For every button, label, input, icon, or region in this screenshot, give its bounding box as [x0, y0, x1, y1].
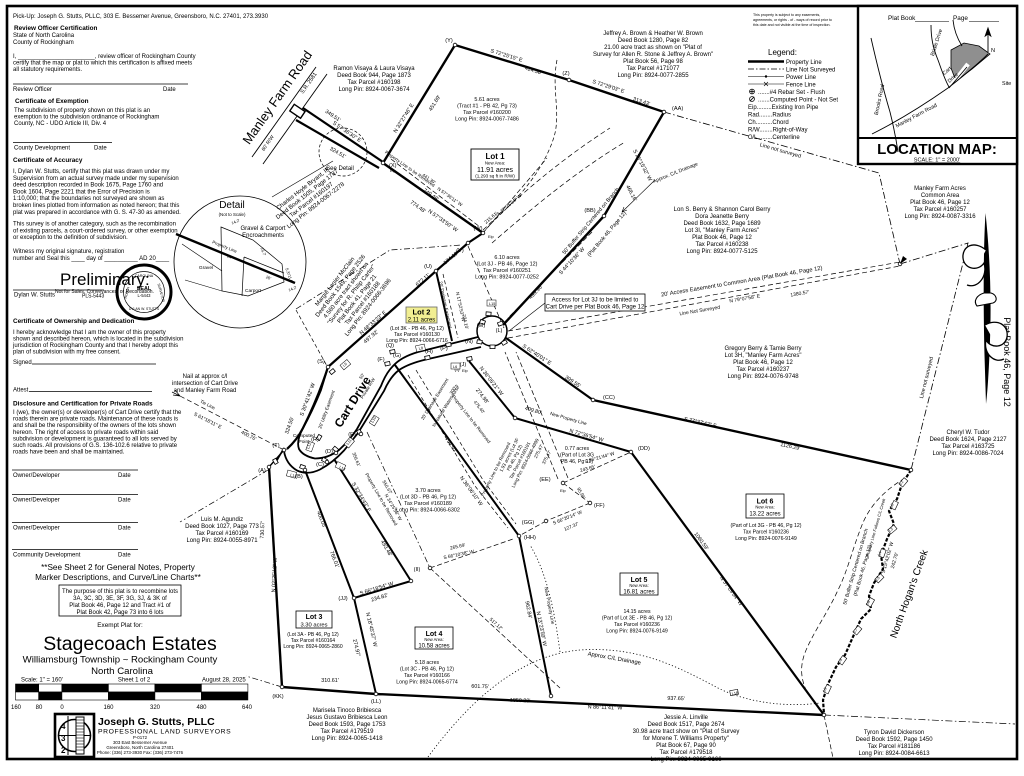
- svg-text:New Area:: New Area:: [485, 161, 505, 166]
- svg-text:Access for Lot 3J to be limite: Access for Lot 3J to be limited to: [552, 298, 639, 304]
- svg-text:(R): (R): [311, 437, 319, 443]
- svg-text:Eip: Eip: [390, 168, 397, 173]
- svg-text:Witness my original signature,: Witness my original signature, registrat…: [13, 249, 124, 255]
- svg-text:(A): (A): [258, 468, 266, 474]
- svg-text:PROFESSIONAL LAND SURVEYORS: PROFESSIONAL LAND SURVEYORS: [98, 729, 231, 736]
- svg-text:.......#4 Rebar Set - Flush: .......#4 Rebar Set - Flush: [758, 90, 825, 96]
- svg-text:Deed Book 944, Page 1873: Deed Book 944, Page 1873: [337, 73, 411, 79]
- svg-text:Dylan W. Stutts: Dylan W. Stutts: [14, 293, 55, 299]
- svg-text:Lot 2: Lot 2: [413, 308, 431, 317]
- svg-text:(P): (P): [440, 346, 448, 352]
- svg-text:(U): (U): [424, 264, 432, 270]
- svg-text:DYLAN W. STUTTS: DYLAN W. STUTTS: [129, 307, 160, 311]
- svg-text:.......Computed Point - Not Se: .......Computed Point - Not Set: [758, 98, 838, 104]
- svg-text:L15: L15: [489, 302, 495, 306]
- svg-text:all statutory requirements.: all statutory requirements.: [13, 67, 82, 73]
- svg-text:This survey is of another cate: This survey is of another category, such…: [13, 222, 176, 228]
- svg-text:SEAL: SEAL: [137, 286, 152, 292]
- svg-text:Deed Book 1517, Page 2674: Deed Book 1517, Page 2674: [647, 722, 725, 728]
- svg-text:Encroachments: Encroachments: [242, 233, 284, 239]
- svg-text:Line Not Surveyed: Line Not Surveyed: [786, 68, 835, 74]
- svg-text:2: 2: [61, 746, 66, 755]
- svg-text:Joseph G. Stutts, PLLC: Joseph G. Stutts, PLLC: [98, 716, 215, 728]
- svg-text:3A, 3C, 3D, 3E, 3F, 3G, 3J, &: 3A, 3C, 3D, 3E, 3F, 3G, 3J, & 3K of: [73, 596, 167, 602]
- svg-text:R/W........Right-of-Way: R/W........Right-of-Way: [748, 128, 807, 134]
- svg-text:(S): (S): [317, 359, 325, 365]
- svg-text:Detail: Detail: [219, 200, 245, 211]
- svg-text:Long Pin: 8924-0076-9149: Long Pin: 8924-0076-9149: [735, 536, 797, 542]
- svg-text:(W): (W): [473, 226, 482, 232]
- svg-text:I, Dylan W. Stutts, certify th: I, Dylan W. Stutts, certify that this pl…: [13, 169, 169, 175]
- svg-text:Owner/Developer: Owner/Developer: [13, 526, 60, 532]
- svg-text:Tax Parcel #160237: Tax Parcel #160237: [736, 367, 790, 373]
- svg-text:Jessie A. Linville: Jessie A. Linville: [664, 715, 709, 721]
- svg-text:Long Pin: 8924-0076-9748: Long Pin: 8924-0076-9748: [727, 374, 799, 380]
- svg-text:I hereby acknowledge that I am: I hereby acknowledge that I am the owner…: [13, 330, 166, 336]
- svg-text:broken lines plotted from info: broken lines plotted from information as…: [13, 203, 179, 209]
- svg-text:21.00 acre tract as shown on ": 21.00 acre tract as shown on "Plat of: [604, 45, 702, 51]
- svg-text:Review Officer: Review Officer: [13, 87, 52, 93]
- svg-text:(H): (H): [425, 349, 433, 355]
- svg-text:I, _______________________, re: I, _______________________, review offic…: [13, 54, 196, 60]
- svg-text:SCALE: 1" = 2000': SCALE: 1" = 2000': [914, 158, 960, 164]
- svg-text:Long Pin: 8924-0067-7486: Long Pin: 8924-0067-7486: [455, 117, 519, 123]
- svg-text:5.18 acres: 5.18 acres: [415, 660, 440, 666]
- svg-text:C/L.........Centerline: C/L.........Centerline: [748, 135, 800, 141]
- svg-text:Plat Book 67, Page 90: Plat Book 67, Page 90: [656, 743, 716, 749]
- svg-text:Plat Book 46, Page 12 and Trac: Plat Book 46, Page 12 and Tract #1 of: [69, 603, 171, 609]
- svg-text:Legend:: Legend:: [768, 48, 797, 57]
- svg-text:Luis M. Agundiz: Luis M. Agundiz: [201, 517, 243, 523]
- svg-text:Jesus Gustavo Bribiesca Leon: Jesus Gustavo Bribiesca Leon: [306, 715, 387, 721]
- svg-text:10.58 acres: 10.58 acres: [418, 644, 449, 650]
- svg-text:Gravel: Gravel: [199, 265, 213, 271]
- svg-text:number and Seal this ____ day: number and Seal this ____ day of _______…: [13, 256, 170, 262]
- svg-text:Tax Parcel #181186: Tax Parcel #181186: [868, 744, 921, 750]
- svg-text:Long Pin: 8924-0065-1418: Long Pin: 8924-0065-1418: [311, 736, 383, 742]
- svg-text:Long Pin: 8924-0076-9149: Long Pin: 8924-0076-9149: [606, 629, 668, 635]
- svg-text:Long Pin: 8924-0087-3316: Long Pin: 8924-0087-3316: [904, 214, 976, 220]
- svg-text:Plat Book 46, Page 12: Plat Book 46, Page 12: [692, 235, 752, 241]
- svg-text:Long Pin: 8924-0065-9166: Long Pin: 8924-0065-9166: [650, 757, 722, 763]
- svg-text:Tax Parcel #171077: Tax Parcel #171077: [626, 66, 680, 72]
- svg-text:New Area:: New Area:: [424, 637, 443, 642]
- svg-text:640: 640: [242, 705, 253, 711]
- svg-text:N: N: [991, 48, 995, 54]
- svg-text:of existing parcels, a court-o: of existing parcels, a court-ordered sur…: [13, 228, 178, 234]
- svg-text:Plat Book 42, Page 73 into 6 l: Plat Book 42, Page 73 into 6 lots: [76, 610, 163, 616]
- svg-text:August 28, 2025: August 28, 2025: [202, 678, 246, 684]
- svg-text:30.98 acre tract show on "Plat: 30.98 acre tract show on "Plat of Survey: [633, 729, 740, 735]
- svg-text:jurisdiction of Rockingham Cou: jurisdiction of Rockingham County and th…: [12, 343, 178, 349]
- svg-text:Nail at approx c/l: Nail at approx c/l: [183, 374, 228, 380]
- svg-text:2.11 acres: 2.11 acres: [408, 318, 436, 324]
- svg-text:Deed Book 1592, Page 1450: Deed Book 1592, Page 1450: [855, 737, 933, 743]
- svg-text:New Area:: New Area:: [629, 583, 648, 588]
- svg-text:Sheet 1 of 2: Sheet 1 of 2: [118, 678, 151, 684]
- svg-text:Tax Parcel #160238: Tax Parcel #160238: [695, 242, 749, 248]
- svg-text:subdivision or development is: subdivision or development is guaranteed…: [13, 436, 177, 442]
- svg-text:Owner/Developer: Owner/Developer: [13, 473, 60, 479]
- svg-text:Plat Book 46, Page 12: Plat Book 46, Page 12: [733, 360, 793, 366]
- svg-text:(1,293 sq ft in R/W): (1,293 sq ft in R/W): [475, 174, 515, 179]
- svg-text:(KK): (KK): [272, 694, 283, 700]
- svg-text:for Morene T. Williams Propert: for Morene T. Williams Property": [643, 736, 729, 742]
- svg-text:and shall be the responsibilit: and shall be the responsibility of the o…: [13, 423, 176, 429]
- svg-text:Certificate of Ownership and D: Certificate of Ownership and Dedication: [13, 318, 135, 325]
- svg-text:Deed Book 1027, Page 773: Deed Book 1027, Page 773: [185, 524, 259, 530]
- svg-text:Deed Book 1280, Page 82: Deed Book 1280, Page 82: [618, 38, 689, 44]
- svg-text:certify that the map or plat t: certify that the map or plat to which th…: [13, 61, 192, 67]
- svg-text:LOCATION MAP:: LOCATION MAP:: [877, 141, 997, 158]
- svg-text:Carport: Carport: [245, 288, 262, 294]
- svg-text:Attest: Attest: [13, 388, 29, 394]
- svg-text:Signed: Signed: [13, 360, 32, 366]
- svg-text:Lot 3: Lot 3: [306, 614, 323, 621]
- svg-text:Stagecoach Estates: Stagecoach Estates: [43, 633, 217, 655]
- svg-text:Supervision from an actual sur: Supervision from an actual survey made u…: [13, 176, 179, 182]
- svg-text:hereon. The right of access to: hereon. The right of access to private r…: [13, 430, 158, 436]
- svg-text:(Part of Lot 3G - PB 46, Pg 12: (Part of Lot 3G - PB 46, Pg 12): [731, 523, 802, 529]
- svg-text:(L): (L): [496, 328, 503, 334]
- svg-text:or exception to the definition: or exception to the definition of subdiv…: [13, 235, 128, 241]
- svg-text:Owner/Developer: Owner/Developer: [13, 498, 60, 504]
- svg-text:(GG): (GG): [522, 520, 535, 526]
- svg-text:PLS-5443: PLS-5443: [82, 294, 104, 300]
- svg-text:13.22 acres: 13.22 acres: [749, 512, 780, 518]
- svg-text:CAROLINA: CAROLINA: [135, 274, 154, 278]
- svg-text:Date: Date: [118, 473, 131, 479]
- svg-text:3.70 acres: 3.70 acres: [415, 488, 440, 494]
- svg-text:and Manley Farm Road: and Manley Farm Road: [174, 388, 237, 394]
- svg-text:Certificate of Exemption: Certificate of Exemption: [15, 98, 89, 105]
- svg-text:intersection of Cart Drive: intersection of Cart Drive: [172, 381, 239, 387]
- svg-text:Eip: Eip: [462, 368, 469, 373]
- svg-text:Long Pin: 8924-0065-2860: Long Pin: 8924-0065-2860: [283, 644, 342, 650]
- svg-text:Lot 3H, "Manley Farm Acres": Lot 3H, "Manley Farm Acres": [725, 353, 802, 359]
- svg-text:Eip.........Existing Iron Pipe: Eip.........Existing Iron Pipe: [748, 105, 819, 111]
- svg-text:Scale: 1" = 160': Scale: 1" = 160': [21, 678, 63, 684]
- svg-text:1850.20': 1850.20': [510, 698, 531, 705]
- svg-text:Exempt Plat for:: Exempt Plat for:: [97, 622, 143, 629]
- svg-text:Tax Parcel #160236: Tax Parcel #160236: [743, 530, 789, 536]
- svg-text:Date: Date: [118, 553, 131, 559]
- svg-text:I (we), the owner(s) or develo: I (we), the owner(s) or developer(s) of …: [13, 410, 182, 416]
- svg-text:roads have been and shall be m: roads have been and shall be maintained.: [13, 450, 125, 456]
- svg-text:Long Pin: 8924-0067-3674: Long Pin: 8924-0067-3674: [338, 87, 410, 93]
- svg-text:Rad........Radius: Rad........Radius: [748, 113, 791, 119]
- svg-text:Tax Parcel #179519: Tax Parcel #179519: [320, 729, 374, 735]
- svg-text:4: 4: [61, 722, 66, 731]
- svg-text:exemption to the subdivision o: exemption to the subdivision ordinance o…: [14, 115, 159, 121]
- svg-text:3.30 acres: 3.30 acres: [300, 623, 327, 629]
- svg-text:(Part of Lot 3E - PB 46, Pg 12: (Part of Lot 3E - PB 46, Pg 12): [602, 616, 673, 622]
- svg-text:(D): (D): [325, 449, 333, 455]
- svg-text:Pick-Up: Joseph G. Stutts, PLL: Pick-Up: Joseph G. Stutts, PLLC, 303 E. …: [13, 14, 269, 20]
- svg-text:(BB): (BB): [584, 208, 595, 214]
- svg-text:Tyron David Dickerson: Tyron David Dickerson: [864, 730, 924, 736]
- svg-text:Power Line: Power Line: [786, 75, 817, 81]
- svg-text:Gregory Berry & Tamie Berry: Gregory Berry & Tamie Berry: [725, 346, 802, 352]
- svg-text:Tax Parcel #160189: Tax Parcel #160189: [404, 501, 452, 507]
- svg-text:The purpose of this plat is to: The purpose of this plat is to recombine…: [62, 589, 178, 595]
- svg-text:agreements, or rights - of - w: agreements, or rights - of - ways of rec…: [753, 18, 832, 22]
- svg-text:Long Pin: 8924-0066-6302: Long Pin: 8924-0066-6302: [396, 508, 460, 514]
- svg-text:Page: Page: [953, 15, 968, 22]
- svg-text:14.15 acres: 14.15 acres: [623, 609, 651, 615]
- svg-text:roads therein are private road: roads therein are private roads. Mainten…: [13, 417, 178, 423]
- svg-text:State of North Carolina: State of North Carolina: [13, 33, 75, 39]
- svg-text:(AA): (AA): [672, 106, 683, 112]
- svg-text:(CC): (CC): [603, 395, 615, 401]
- svg-text:(EE): (EE): [539, 477, 550, 483]
- svg-text:Property Line: Property Line: [786, 60, 822, 66]
- svg-text:(Lot 3D - PB 46, Pg 12): (Lot 3D - PB 46, Pg 12): [400, 495, 456, 501]
- svg-text:deed description recorded in B: deed description recorded in Book 1675, …: [13, 183, 163, 189]
- svg-text:(Lot 3J - PB 46, Page 12): (Lot 3J - PB 46, Page 12): [477, 262, 538, 268]
- svg-text:Deed Book 1632, Page 1689: Deed Book 1632, Page 1689: [683, 221, 761, 227]
- svg-text:Tax Parcel #179518: Tax Parcel #179518: [659, 750, 713, 756]
- svg-text:Date: Date: [118, 526, 131, 532]
- svg-text:Dora Jeanette Berry: Dora Jeanette Berry: [695, 214, 749, 220]
- svg-text:Tax Parcel #160169: Tax Parcel #160169: [195, 531, 249, 537]
- svg-text:(E): (E): [348, 432, 356, 438]
- svg-text:(LL): (LL): [371, 699, 381, 705]
- svg-text:(II): (II): [414, 567, 421, 573]
- svg-text:Plat Book 46, Page 12: Plat Book 46, Page 12: [910, 200, 970, 206]
- svg-text:Marker Descriptions, and Curve: Marker Descriptions, and Curve/Line Char…: [35, 573, 201, 582]
- svg-text:1:10,000; that the boundaries: 1:10,000; that the boundaries not survey…: [13, 196, 164, 202]
- svg-text:Survey for Allen R. Stone & Je: Survey for Allen R. Stone & Jeffrey A. B…: [593, 52, 713, 58]
- svg-text:Lon S. Berry & Shannon Carol B: Lon S. Berry & Shannon Carol Berry: [674, 207, 771, 213]
- svg-text:(Y): (Y): [445, 38, 453, 44]
- svg-text:Cheryl W. Tudor: Cheryl W. Tudor: [946, 430, 989, 436]
- svg-text:Tax Parcel #160257: Tax Parcel #160257: [913, 207, 967, 213]
- svg-text:Tax Parcel #160236: Tax Parcel #160236: [614, 622, 660, 628]
- svg-text:(V): (V): [456, 248, 464, 254]
- svg-text:Ramon Visaya & Laura Visaya: Ramon Visaya & Laura Visaya: [333, 66, 415, 72]
- svg-text:L-5443: L-5443: [137, 293, 151, 298]
- svg-text:Eip: Eip: [488, 234, 495, 239]
- svg-text:Review Officer Certification: Review Officer Certification: [14, 25, 98, 32]
- svg-text:(Q): (Q): [386, 343, 394, 349]
- svg-text:The subdivision of property sh: The subdivision of property shown on thi…: [14, 108, 150, 114]
- svg-text:Fence Line: Fence Line: [786, 83, 816, 89]
- svg-text:160: 160: [11, 705, 22, 711]
- svg-text:80: 80: [36, 705, 43, 711]
- svg-text:Plat Book: Plat Book: [888, 15, 916, 22]
- svg-text:160: 160: [103, 705, 114, 711]
- svg-text:(F): (F): [377, 357, 384, 363]
- svg-text:Date: Date: [118, 498, 131, 504]
- svg-text:(N): (N): [465, 339, 473, 345]
- svg-text:Long Pin: 8924-0077-5125: Long Pin: 8924-0077-5125: [686, 249, 758, 255]
- svg-text:16.81 acres: 16.81 acres: [623, 590, 654, 596]
- svg-text:(Lot 3C - PB 46, Pg 12): (Lot 3C - PB 46, Pg 12): [400, 667, 454, 673]
- svg-text:Deed Book 1624, Page 2127: Deed Book 1624, Page 2127: [929, 437, 1007, 443]
- svg-text:New Area:: New Area:: [755, 505, 774, 510]
- svg-text:480: 480: [196, 705, 207, 711]
- svg-text:Common Area: Common Area: [921, 193, 960, 199]
- svg-text:3: 3: [61, 734, 66, 743]
- svg-text:(C): (C): [316, 462, 324, 468]
- svg-text:937.65': 937.65': [667, 696, 685, 703]
- svg-text:(HH): (HH): [524, 535, 536, 541]
- svg-text:320: 320: [150, 705, 161, 711]
- svg-text:this date and not visible at t: this date and not visible at the time of…: [753, 23, 831, 27]
- svg-text:Williamsburg Township ~ Rockin: Williamsburg Township ~ Rockingham Count…: [23, 655, 218, 666]
- svg-text:(T): (T): [272, 443, 279, 449]
- svg-text:Deed Book 1593, Page 1753: Deed Book 1593, Page 1753: [308, 722, 386, 728]
- svg-text:(G): (G): [393, 353, 401, 359]
- svg-text:Ch..........Chord: Ch..........Chord: [748, 120, 789, 126]
- svg-text:0.77 acres: 0.77 acres: [565, 446, 590, 452]
- svg-text:Tax Parcel #160251: Tax Parcel #160251: [483, 268, 531, 274]
- svg-text:(Part of Lot 3G: (Part of Lot 3G: [560, 453, 594, 459]
- svg-text:Plat Book 56, Page 98: Plat Book 56, Page 98: [623, 59, 683, 65]
- svg-text:Long Pin: 8924-0065-6774: Long Pin: 8924-0065-6774: [396, 680, 458, 686]
- svg-text:Long Pin: 8924-0055-8971: Long Pin: 8924-0055-8971: [186, 538, 258, 544]
- svg-text:Jeffrey A. Brown & Heather W.: Jeffrey A. Brown & Heather W. Brown: [603, 31, 703, 37]
- svg-text:(FF): (FF): [594, 503, 605, 509]
- svg-text:Cart Drive per Plat Book 46, P: Cart Drive per Plat Book 46, Page 12: [546, 305, 645, 311]
- svg-text:Book 1604, Page 2221 that the: Book 1604, Page 2221 that the Error of P…: [13, 189, 150, 195]
- svg-text:County Development: County Development: [14, 146, 70, 152]
- svg-text:730.57': 730.57': [260, 521, 267, 539]
- svg-text:North Carolina: North Carolina: [91, 666, 154, 677]
- svg-text:Long Pin: 8924-0084-6613: Long Pin: 8924-0084-6613: [858, 751, 930, 757]
- svg-text:Date: Date: [94, 146, 107, 152]
- svg-text:Eip: Eip: [560, 488, 567, 493]
- svg-text:Phone: (336) 273-3930 Fax: (3: Phone: (336) 273-3930 Fax: (336) 273-747…: [97, 750, 184, 755]
- svg-text:Long Pin: 8924-0086-7024: Long Pin: 8924-0086-7024: [932, 451, 1004, 457]
- svg-text:6.10 acres: 6.10 acres: [494, 255, 519, 261]
- svg-text:(Tract #1 - PB 42, Pg 73): (Tract #1 - PB 42, Pg 73): [457, 104, 517, 110]
- svg-text:shown and described hereon, wh: shown and described hereon, which is loc…: [13, 337, 183, 343]
- svg-text:Site: Site: [1002, 81, 1011, 87]
- svg-text:Tax Parcel #160166: Tax Parcel #160166: [404, 673, 450, 679]
- svg-text:(M): (M): [477, 323, 486, 329]
- svg-text:Tax Parcel #160200: Tax Parcel #160200: [463, 110, 511, 116]
- svg-text:such roads. All provisions of: such roads. All provisions of G.S. 136-1…: [13, 443, 178, 449]
- svg-text:310.61': 310.61': [321, 678, 339, 684]
- svg-text:(DD): (DD): [638, 446, 650, 452]
- svg-text:County of Rockingham: County of Rockingham: [13, 40, 74, 46]
- svg-text:Disclosure and Certification f: Disclosure and Certification for Private…: [13, 401, 153, 408]
- svg-text:Tax Parcel #163725: Tax Parcel #163725: [941, 444, 995, 450]
- svg-text:L6: L6: [453, 365, 457, 369]
- svg-text:Manley Farm Acres: Manley Farm Acres: [914, 186, 966, 192]
- svg-text:Community Development: Community Development: [13, 553, 81, 559]
- svg-text:**See Sheet 2 for General Note: **See Sheet 2 for General Notes, Propert…: [41, 563, 196, 572]
- svg-text:Long Pin: 8924-0077-2855: Long Pin: 8924-0077-2855: [617, 73, 689, 79]
- svg-text:County, NC - UDO Article III,: County, NC - UDO Article III, Div. 4: [14, 121, 107, 127]
- svg-text:Long Pin: 8924-0077-0252: Long Pin: 8924-0077-0252: [475, 275, 539, 281]
- svg-text:(JJ): (JJ): [338, 596, 347, 602]
- svg-text:This property is subject to an: This property is subject to any easement…: [753, 13, 820, 17]
- svg-text:601.75': 601.75': [471, 684, 489, 691]
- svg-text:N 86°11'41" W: N 86°11'41" W: [588, 704, 624, 711]
- svg-text:Gravel & Carport: Gravel & Carport: [240, 226, 285, 232]
- svg-text:Marisela Tinoco Bribiesca: Marisela Tinoco Bribiesca: [313, 708, 382, 714]
- svg-text:Date: Date: [163, 87, 176, 93]
- svg-text:plan of subdivision with my fr: plan of subdivision with my free consent…: [13, 350, 121, 356]
- svg-text:5.61 acres: 5.61 acres: [474, 97, 499, 103]
- svg-text:Long Pin: 8924-0066-6716: Long Pin: 8924-0066-6716: [386, 338, 448, 344]
- svg-text:(Z): (Z): [562, 71, 569, 77]
- svg-text:(Not to Scale): (Not to Scale): [219, 212, 246, 217]
- svg-text:Lot 3I, "Manley Farm Acres": Lot 3I, "Manley Farm Acres": [685, 228, 759, 234]
- svg-text:Tax Parcel #160198: Tax Parcel #160198: [347, 80, 401, 86]
- svg-text:Certificate of Accuracy: Certificate of Accuracy: [13, 157, 83, 164]
- svg-text:plat was prepared in accordanc: plat was prepared in accordance with G. …: [13, 210, 181, 216]
- svg-text:See Detail: See Detail: [326, 166, 354, 172]
